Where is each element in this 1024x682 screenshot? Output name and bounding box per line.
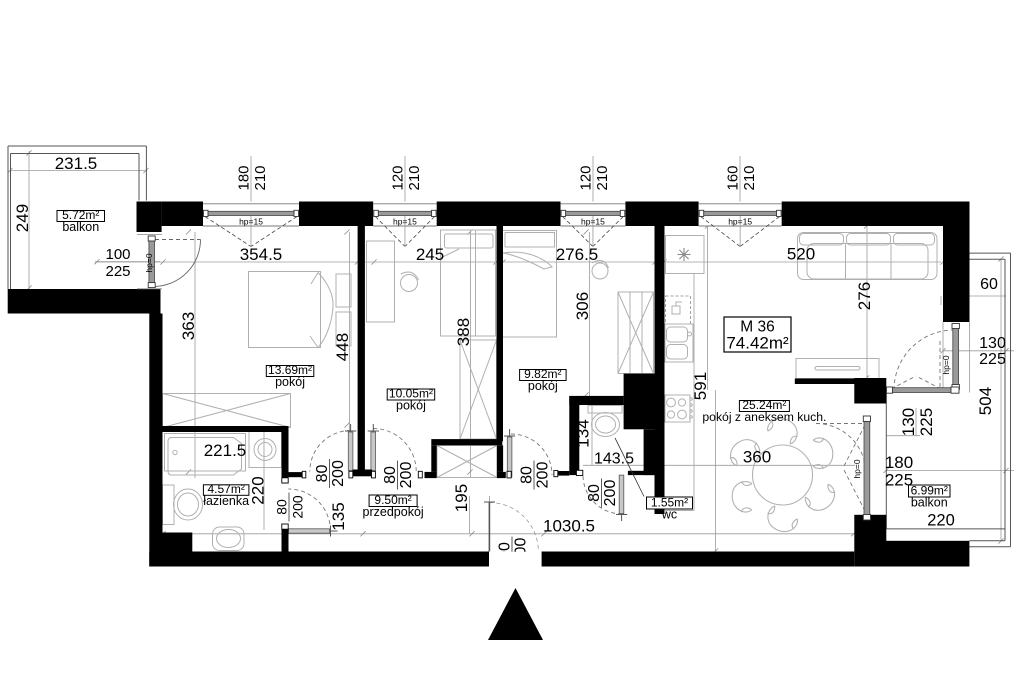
svg-text:276.5: 276.5 (556, 245, 599, 264)
svg-text:1030.5: 1030.5 (543, 517, 595, 536)
svg-text:195: 195 (452, 484, 471, 512)
svg-text:220: 220 (927, 512, 955, 530)
svg-text:80: 80 (586, 484, 603, 502)
svg-text:360: 360 (743, 448, 771, 467)
svg-text:130: 130 (899, 408, 918, 436)
svg-text:306: 306 (573, 292, 592, 320)
svg-text:hp=0: hp=0 (852, 459, 862, 478)
svg-text:210: 210 (406, 165, 423, 190)
svg-text:130: 130 (979, 335, 1006, 352)
svg-text:591: 591 (691, 372, 710, 400)
svg-text:225: 225 (979, 351, 1006, 368)
svg-text:245: 245 (416, 245, 444, 264)
svg-text:balkon: balkon (62, 220, 99, 234)
svg-text:210: 210 (594, 165, 611, 190)
svg-text:hp=0: hp=0 (144, 253, 154, 272)
svg-text:520: 520 (787, 245, 815, 264)
svg-text:80: 80 (314, 465, 331, 483)
svg-text:210: 210 (252, 165, 269, 190)
svg-text:80: 80 (382, 466, 399, 484)
svg-text:200: 200 (602, 480, 619, 507)
svg-text:120: 120 (390, 165, 407, 190)
svg-text:135: 135 (329, 502, 348, 530)
svg-text:388: 388 (454, 318, 473, 346)
svg-text:200: 200 (330, 460, 347, 487)
svg-text:160: 160 (725, 165, 742, 190)
svg-text:pokój: pokój (528, 379, 558, 393)
svg-text:pokój z aneksem kuch.: pokój z aneksem kuch. (702, 410, 826, 424)
svg-text:200: 200 (398, 462, 415, 489)
svg-text:363: 363 (179, 312, 198, 340)
svg-text:225: 225 (917, 408, 936, 436)
svg-text:134: 134 (574, 419, 593, 447)
svg-text:180: 180 (885, 453, 913, 472)
svg-text:balkon: balkon (911, 496, 948, 510)
svg-text:hp=15: hp=15 (393, 217, 417, 227)
svg-text:hp=15: hp=15 (581, 217, 605, 227)
svg-text:74.42m²: 74.42m² (726, 334, 789, 353)
svg-text:504: 504 (976, 387, 995, 415)
svg-text:pokój: pokój (275, 375, 305, 389)
svg-text:249: 249 (13, 204, 32, 232)
svg-text:60: 60 (980, 276, 998, 293)
svg-text:łazienka: łazienka (203, 494, 249, 508)
svg-text:przedpokój: przedpokój (363, 505, 424, 519)
svg-text:120: 120 (578, 165, 595, 190)
svg-text:221.5: 221.5 (204, 441, 247, 460)
svg-text:80: 80 (518, 466, 535, 484)
svg-text:200: 200 (535, 462, 552, 489)
svg-text:100: 100 (105, 246, 130, 263)
svg-text:hp=15: hp=15 (239, 217, 263, 227)
svg-text:276: 276 (855, 282, 874, 310)
svg-text:200: 200 (290, 495, 306, 519)
svg-text:231.5: 231.5 (55, 154, 98, 173)
svg-text:80: 80 (273, 499, 289, 515)
svg-text:225: 225 (105, 263, 130, 280)
svg-text:220: 220 (249, 476, 268, 504)
svg-text:180: 180 (236, 165, 253, 190)
svg-text:hp=15: hp=15 (728, 217, 752, 227)
svg-text:210: 210 (741, 165, 758, 190)
svg-text:448: 448 (333, 333, 352, 361)
svg-text:hp=0: hp=0 (941, 355, 951, 374)
svg-text:wc: wc (661, 508, 677, 522)
svg-text:pokój: pokój (396, 399, 426, 413)
svg-text:354.5: 354.5 (240, 245, 283, 264)
